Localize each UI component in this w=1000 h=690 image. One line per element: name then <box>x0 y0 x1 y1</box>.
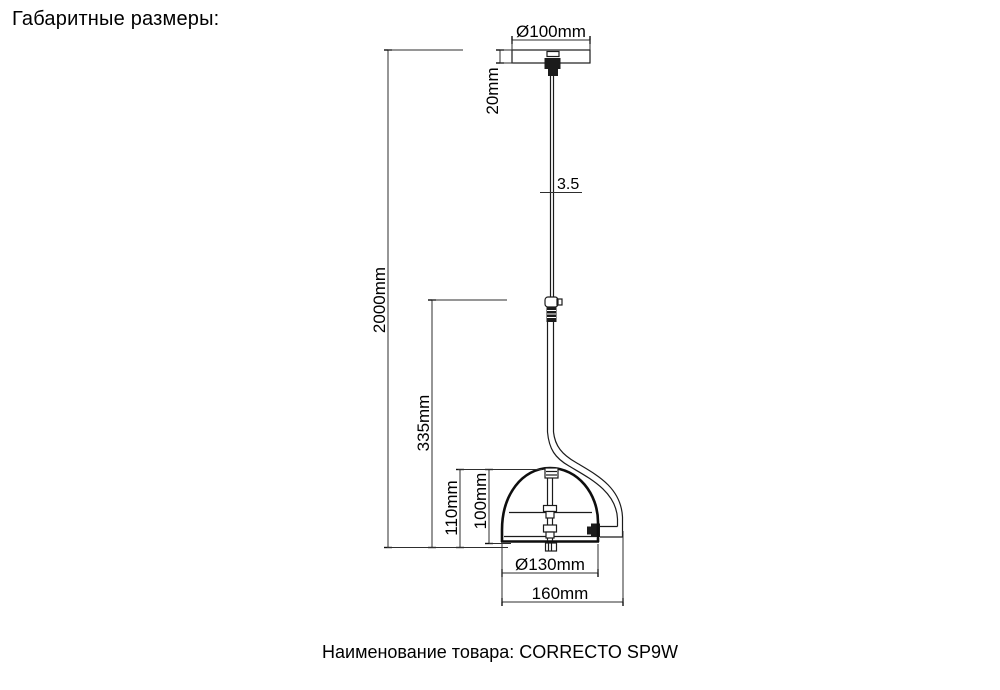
dim-canopy-height: 20mm <box>483 50 513 115</box>
stem-mid-nut-lower <box>546 512 554 519</box>
dim-label-shade-height-outer: 110mm <box>442 480 461 535</box>
dim-label-shade-height-inner: 100mm <box>471 473 490 530</box>
dim-label-total-width: 160mm <box>532 584 589 603</box>
dim-label-canopy-height: 20mm <box>483 67 502 114</box>
stem-top-nut <box>545 468 558 478</box>
dim-label-total-drop: 2000mm <box>370 267 389 333</box>
suspension-cable <box>551 76 554 297</box>
dim-cord-diameter: 3.5 <box>540 176 582 193</box>
product-name-caption: Наименование товара: CORRECTO SP9W <box>0 642 1000 663</box>
rigid-stem-tube <box>548 322 554 432</box>
dim-canopy-diameter: Ø100mm <box>512 22 590 50</box>
arm-connector-cap <box>587 527 592 535</box>
canopy-bolt-lower <box>548 69 558 76</box>
dim-total-drop: 2000mm <box>370 50 463 548</box>
cable-coupler <box>545 297 562 322</box>
dim-label-shade-diameter: Ø130mm <box>515 555 585 574</box>
ceiling-canopy <box>512 50 590 76</box>
pendant-lamp-dimension-drawing: Ø100mm 20mm 3.5 2000mm 335mm <box>0 0 1000 690</box>
drawing-page: Габаритные размеры: <box>0 0 1000 690</box>
stem-lower-nut-lower <box>546 532 554 538</box>
canopy-bolt-nut <box>545 58 561 69</box>
dim-label-canopy-diameter: Ø100mm <box>516 22 586 41</box>
dim-shade-height-outer: 110mm <box>442 470 464 548</box>
dim-label-cord-diameter: 3.5 <box>557 176 579 193</box>
coupler-cap <box>545 297 558 307</box>
dim-label-arm-height: 335mm <box>414 395 433 452</box>
stem-lower-nut <box>544 525 557 532</box>
lamp-shade <box>501 468 599 551</box>
stem-mid-nut <box>544 506 557 512</box>
